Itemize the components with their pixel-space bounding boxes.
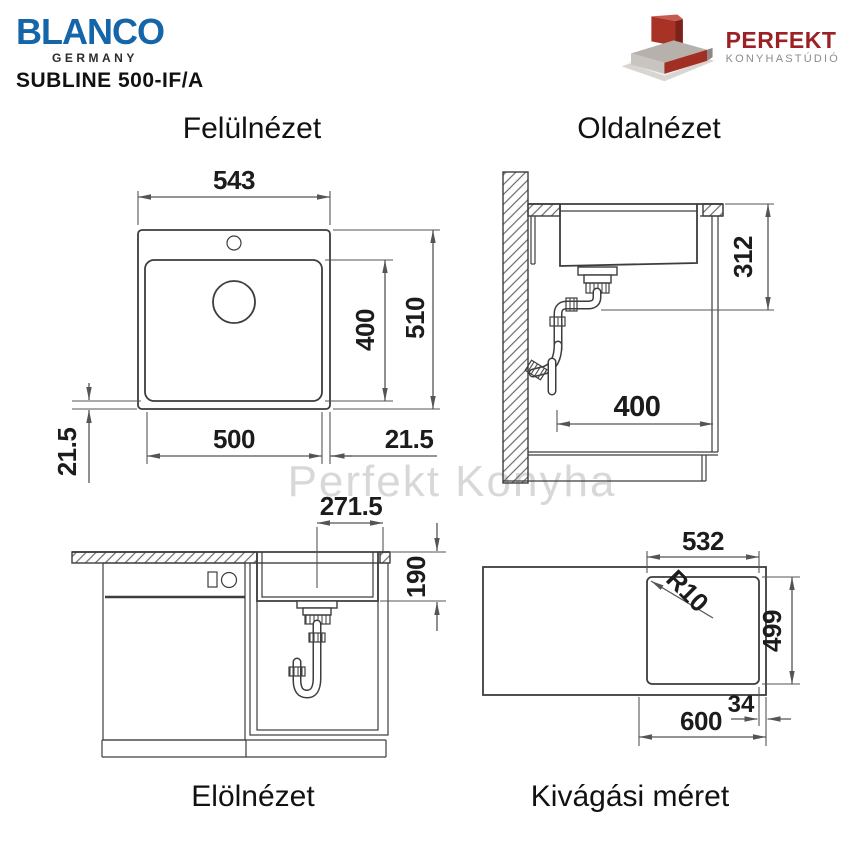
dim-rim-right: 21.5 <box>385 424 434 454</box>
dim-rim-left: 21.5 <box>52 428 82 477</box>
left-cabinet <box>103 563 245 740</box>
control-knob <box>222 573 237 588</box>
front-siphon <box>289 601 337 694</box>
partner-logo: PERFEKT KONYHASTÚDIÓ <box>618 8 840 84</box>
blanco-logo: BLANCO <box>16 14 204 50</box>
side-view-title: Oldalnézet <box>577 112 721 145</box>
dim-cabinet-width: 600 <box>680 706 722 736</box>
countertop-section-left <box>528 204 560 216</box>
dim-under-counter-depth: 312 <box>728 236 758 278</box>
bowl-profile <box>560 204 697 266</box>
sink-rim-outline <box>138 230 330 409</box>
front-view: Elölnézet <box>72 491 446 813</box>
partner-logo-text: PERFEKT KONYHASTÚDIÓ <box>726 28 840 65</box>
top-view: Felülnézet 543 510 400 5 <box>52 112 440 483</box>
side-siphon <box>525 267 617 391</box>
spec-sheet: Perfekt Konyha Felülnézet 543 510 400 <box>0 0 850 850</box>
control-rect <box>208 572 217 587</box>
dim-drain-offset: 271.5 <box>320 491 383 521</box>
dim-base-clearance: 400 <box>614 391 661 423</box>
brand-header: BLANCO GERMANY SUBLINE 500-IF/A <box>16 14 204 93</box>
dim-outer-width: 543 <box>213 165 255 195</box>
dim-side-offset: 34 <box>728 691 755 718</box>
dim-cutout-width: 532 <box>682 526 724 556</box>
dim-corner-radius: R10 <box>660 564 714 618</box>
dim-bowl-depth: 400 <box>350 309 380 351</box>
countertop-section-right <box>703 204 723 216</box>
top-view-title: Felülnézet <box>183 112 322 145</box>
cutout-view: Kivágási méret 532 R10 499 34 <box>483 526 800 813</box>
dim-cutout-depth: 499 <box>757 610 787 652</box>
wall-section <box>503 172 528 483</box>
blanco-country-label: GERMANY <box>52 51 204 65</box>
perfekt-logo-mark <box>618 8 720 84</box>
cutout-view-title: Kivágási méret <box>531 780 730 813</box>
partner-subtitle: KONYHASTÚDIÓ <box>726 53 840 65</box>
product-model-title: SUBLINE 500-IF/A <box>16 69 204 93</box>
partner-name: PERFEKT <box>726 28 840 52</box>
dim-bowl-width: 500 <box>213 424 255 454</box>
side-view: Oldalnézet <box>503 112 774 483</box>
dim-bowl-inner-depth: 190 <box>401 556 431 598</box>
countertop-front-left <box>72 552 257 563</box>
countertop-front-right <box>380 552 390 563</box>
tap-hole <box>227 236 241 250</box>
front-view-title: Elölnézet <box>191 780 315 813</box>
dim-outer-depth: 510 <box>400 297 430 339</box>
counter-panel <box>483 567 766 695</box>
technical-drawing: Perfekt Konyha Felülnézet 543 510 400 <box>0 0 850 850</box>
drain-hole <box>213 281 255 323</box>
